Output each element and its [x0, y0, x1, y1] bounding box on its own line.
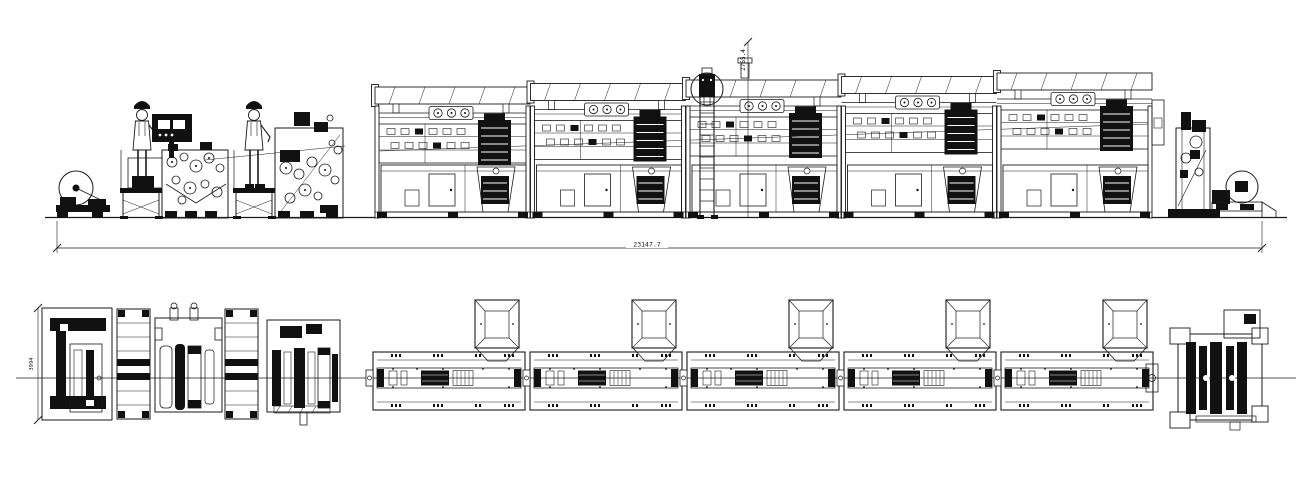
oven-end-panel: [1152, 100, 1164, 145]
cad-drawing-sheet: 23147.7 2765.4 3994: [0, 0, 1300, 489]
plan-view: 3994: [16, 300, 1296, 430]
oven-plan-5: [994, 300, 1153, 410]
coater-unit-1: [128, 142, 228, 218]
elevation-view: 23147.7 2765.4: [45, 38, 1287, 253]
oven-plan-3: [680, 300, 839, 410]
operator-2: [245, 101, 270, 188]
platform-plan-2: [225, 309, 258, 419]
access-ladder: [697, 97, 718, 219]
oven-plan-4: [837, 300, 996, 410]
oven-upper-5: [994, 71, 1153, 152]
rewinder: [1168, 112, 1276, 218]
oven-upper-1: [372, 85, 531, 166]
rewinder-plan: [1146, 310, 1268, 430]
overall-length-label: 23147.7: [633, 241, 660, 249]
coater-plan-1: [155, 303, 222, 412]
ramp: [1262, 202, 1276, 218]
oven-upper-4: [838, 74, 997, 155]
control-panel: [152, 114, 192, 158]
coater-unit-2: [275, 112, 343, 218]
production-line-drawing: 23147.7 2765.4 3994: [0, 0, 1300, 489]
oven-upper-2: [527, 81, 686, 162]
oven-plan-1: [366, 300, 525, 410]
oven-plan-2: [523, 300, 682, 410]
plan-width-dimension: 3994: [29, 304, 42, 424]
unwinder-plan: [42, 308, 112, 420]
platform-plan-1: [117, 309, 150, 419]
machine-height-label: 2765.4: [740, 49, 747, 71]
overall-length-dimension: 23147.7: [53, 221, 1266, 253]
unwinder: [56, 171, 110, 218]
coater-plan-2: [267, 320, 340, 425]
plan-width-label: 3994: [29, 357, 35, 371]
platform-2: [233, 150, 276, 219]
